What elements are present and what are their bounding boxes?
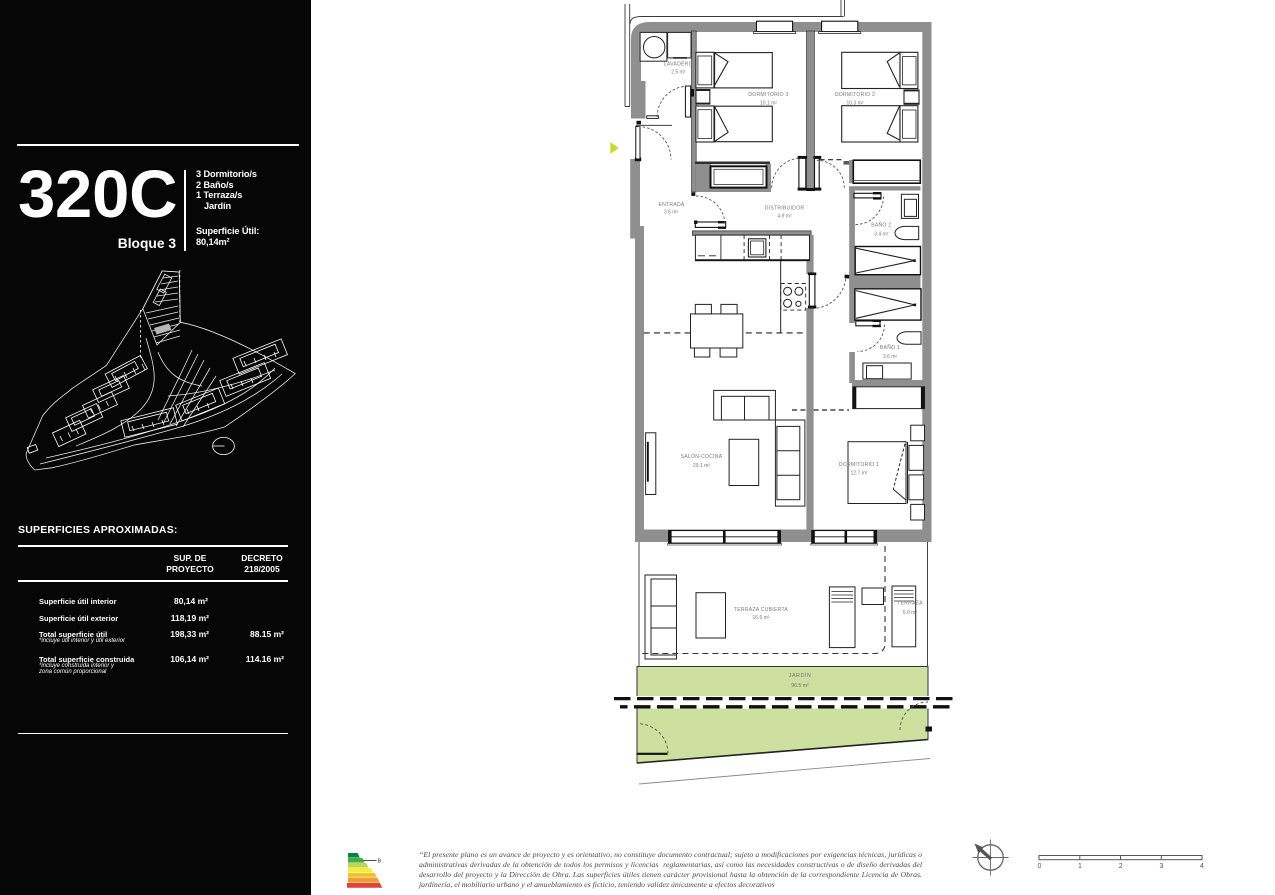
svg-text:10.1 m²: 10.1 m² (760, 101, 777, 107)
svg-text:TERRAZA CUBIERTA: TERRAZA CUBIERTA (734, 607, 789, 613)
svg-text:ENTRADA: ENTRADA (658, 202, 684, 208)
svg-text:BAÑO 2: BAÑO 2 (871, 221, 891, 228)
svg-text:2.5 m²: 2.5 m² (671, 69, 686, 75)
svg-text:3.6 m²: 3.6 m² (883, 354, 898, 360)
svg-text:3.4 m²: 3.4 m² (874, 232, 889, 238)
svg-text:LAVADERO: LAVADERO (664, 61, 693, 67)
svg-text:2: 2 (1119, 863, 1123, 870)
svg-text:SALÓN-COCINA: SALÓN-COCINA (681, 453, 723, 460)
svg-text:29.1 m²: 29.1 m² (693, 463, 710, 469)
svg-text:10.3 m²: 10.3 m² (847, 101, 864, 107)
svg-text:DORMITORIO 2: DORMITORIO 2 (835, 92, 875, 98)
svg-text:B: B (378, 859, 382, 865)
svg-text:DORMITORIO 3: DORMITORIO 3 (748, 92, 788, 98)
svg-text:4: 4 (1200, 863, 1204, 870)
svg-text:DISTRIBUIDOR: DISTRIBUIDOR (765, 206, 805, 212)
svg-text:12.7 m²: 12.7 m² (851, 470, 868, 476)
svg-text:4.9 m²: 4.9 m² (777, 214, 792, 220)
svg-text:3: 3 (1159, 863, 1163, 870)
svg-text:JARDÍN: JARDÍN (789, 672, 811, 679)
svg-text:DORMITORIO 1: DORMITORIO 1 (839, 462, 879, 468)
svg-text:96.5 m²: 96.5 m² (791, 683, 809, 689)
svg-text:16.6 m²: 16.6 m² (753, 615, 770, 621)
svg-text:1: 1 (1078, 863, 1082, 870)
svg-text:BAÑO 1: BAÑO 1 (880, 344, 900, 351)
svg-text:5.0 m²: 5.0 m² (903, 610, 918, 616)
svg-text:0: 0 (1038, 863, 1042, 870)
svg-text:3.6 m²: 3.6 m² (664, 210, 679, 216)
svg-text:TERRAZA: TERRAZA (897, 601, 923, 607)
